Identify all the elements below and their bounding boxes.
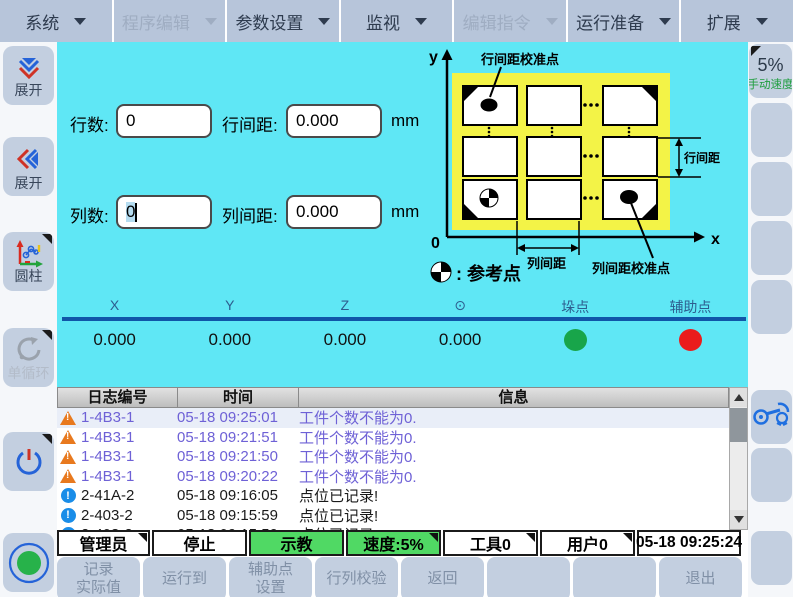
row-col-check-button[interactable]: 行列校验 [315,557,398,597]
run-to-button[interactable]: 运行到 [143,557,226,597]
chevron-down-icon [546,18,558,25]
coord-rot-value: 0.000 [403,330,518,350]
log-row[interactable]: 1-4B3-1 05-18 09:25:01 工件个数不能为0. [57,408,729,428]
col-unit-label: mm [391,202,419,222]
warning-icon [60,450,76,464]
scroll-down-button[interactable] [730,510,747,529]
log-rows: 1-4B3-1 05-18 09:25:01 工件个数不能为0. 1-4B3-1… [57,408,729,530]
empty-function-button [487,557,570,597]
expand-left-button[interactable]: 展开 [3,137,54,196]
coord-x-value: 0.000 [57,330,172,350]
right-toolbar-button[interactable] [751,221,792,275]
servo-on-button[interactable] [3,533,54,592]
cols-input[interactable]: 0 [116,195,212,229]
log-scrollbar[interactable] [729,387,748,530]
chevron-down-icon [756,18,768,25]
servo-on-icon [6,540,52,586]
chevron-down-icon [659,18,671,25]
coords-divider-line [62,317,746,321]
coord-header-stack-point: 垛点 [518,297,633,317]
right-toolbar-button[interactable] [751,531,792,585]
single-cycle-icon [13,335,45,365]
chevron-down-icon [318,18,330,25]
robot-arm-icon [752,399,792,435]
chevron-down-icon [415,18,427,25]
exit-button[interactable]: 退出 [659,557,742,597]
double-chevron-left-icon [13,143,45,175]
coord-header-x: X [57,297,172,317]
status-user-frame[interactable]: 用户0 [540,530,635,556]
right-toolbar-button[interactable] [751,448,792,502]
right-toolbar-button[interactable] [751,280,792,334]
log-panel: 日志编号 时间 信息 1-4B3-1 05-18 09:25:01 工件个数不能… [57,387,748,530]
left-toolbar: 展开 展开 圆柱 [0,42,57,597]
rows-input[interactable]: 0 [116,104,212,138]
coords-value-row: 0.000 0.000 0.000 0.000 [57,329,748,351]
warning-icon [60,430,76,444]
expand-down-button[interactable]: 展开 [3,46,54,105]
cylinder-coord-button[interactable]: 圆柱 [3,232,54,291]
rows-label: 行数: [70,111,109,136]
log-row[interactable]: 1-4B3-1 05-18 09:21:51 工件个数不能为0. [57,428,729,448]
pallet-settings-panel: 行数: 0 行间距: 0.000 mm 列数: 0 列间距: 0.000 mm … [57,42,748,387]
col-calib-callout: 列间距校准点 [592,261,670,276]
aux-point-settings-button[interactable]: 辅助点 设置 [229,557,312,597]
status-clock: 05-18 09:25:24 [637,530,741,556]
warning-icon [60,469,76,483]
row-pitch-dim-label: 行间距 [683,150,720,165]
coord-header-aux-point: 辅助点 [633,297,748,317]
record-actual-value-button[interactable]: 记录 实际值 [57,557,140,597]
chevron-down-icon [74,18,86,25]
right-toolbar-button[interactable] [751,162,792,216]
col-pitch-dim-label: 列间距 [527,256,566,271]
log-row[interactable]: 1-4B3-1 05-18 09:20:22 工件个数不能为0. [57,467,729,487]
row-pitch-input[interactable]: 0.000 [286,104,382,138]
right-toolbar: 5% 手动速度 [748,42,793,597]
manual-speed-button[interactable]: 5% 手动速度 [749,44,792,98]
coord-header-y: Y [172,297,287,317]
row-calib-point [481,99,498,112]
empty-function-button [573,557,656,597]
coord-z-value: 0.000 [287,330,402,350]
coord-header-z: Z [287,297,402,317]
menu-bar: 系统 程序编辑 参数设置 监视 编辑指令 运行准备 扩展 [0,0,793,42]
single-cycle-button: 单循环 [3,328,54,387]
log-header: 日志编号 时间 信息 [57,387,729,408]
menu-item-program-edit: 程序编辑 [114,0,228,42]
log-row[interactable]: 2-41A-2 05-18 09:16:05 点位已记录! [57,486,729,506]
status-speed[interactable]: 速度:5% [346,530,441,556]
menu-item-param-settings[interactable]: 参数设置 [227,0,341,42]
y-axis-label: y [429,49,438,66]
info-icon [61,488,76,503]
col-pitch-input[interactable]: 0.000 [286,195,382,229]
triangle-up-icon [734,394,744,401]
row-pitch-label: 行间距: [222,111,278,136]
warning-icon [60,411,76,425]
pallet-diagram: y 0 x [425,45,745,293]
status-run-state: 停止 [152,530,247,556]
log-header-msg: 信息 [299,388,728,407]
row-calib-callout: 行间距校准点 [480,52,559,67]
menu-item-edit-command: 编辑指令 [454,0,568,42]
robot-coordinate-icon [13,240,45,268]
chevron-down-icon [205,18,217,25]
log-row[interactable]: 1-4B3-1 05-18 09:21:50 工件个数不能为0. [57,447,729,467]
power-icon [12,445,46,479]
text-caret [135,203,137,222]
cols-label: 列数: [70,202,109,227]
menu-item-monitor[interactable]: 监视 [341,0,455,42]
log-row[interactable]: 2-403-2 05-18 09:15:59 点位已记录! [57,506,729,526]
status-user-level[interactable]: 管理员 [57,530,150,556]
scrollbar-thumb[interactable] [730,408,747,442]
stack-point-indicator [564,329,587,351]
legend-label: : 参考点 [456,263,521,284]
power-button[interactable] [3,432,54,491]
status-mode: 示教 [249,530,344,556]
menu-item-extend[interactable]: 扩展 [681,0,793,42]
menu-item-run-prepare[interactable]: 运行准备 [568,0,682,42]
coords-header-row: X Y Z ⊙ 垛点 辅助点 [57,297,748,317]
log-header-id: 日志编号 [58,388,178,407]
status-tool[interactable]: 工具0 [443,530,538,556]
coord-header-rot: ⊙ [403,297,518,317]
scroll-up-button[interactable] [730,388,747,407]
menu-item-system[interactable]: 系统 [0,0,114,42]
triangle-down-icon [734,516,744,523]
col-pitch-label: 列间距: [222,202,278,227]
robot-teach-pendant-screen: 系统 程序编辑 参数设置 监视 编辑指令 运行准备 扩展 展开 展开 [0,0,793,597]
aux-point-indicator [679,329,702,351]
x-axis-label: x [711,231,720,248]
log-header-time: 时间 [178,388,299,407]
reference-point-legend-mark [431,262,451,282]
coord-y-value: 0.000 [172,330,287,350]
info-icon [61,508,76,523]
back-button[interactable]: 返回 [401,557,484,597]
function-key-bar: 记录 实际值 运行到 辅助点 设置 行列校验 返回 退出 [57,557,793,597]
origin-label: 0 [431,235,440,252]
right-toolbar-button[interactable] [751,103,792,157]
robot-jog-button[interactable] [751,390,792,444]
double-chevron-down-icon [13,54,45,82]
status-bar: 管理员 停止 示教 速度:5% 工具0 用户0 05-18 09:25:24 [57,530,741,556]
reference-point-mark [480,189,498,207]
row-unit-label: mm [391,111,419,131]
col-calib-point [620,190,638,204]
